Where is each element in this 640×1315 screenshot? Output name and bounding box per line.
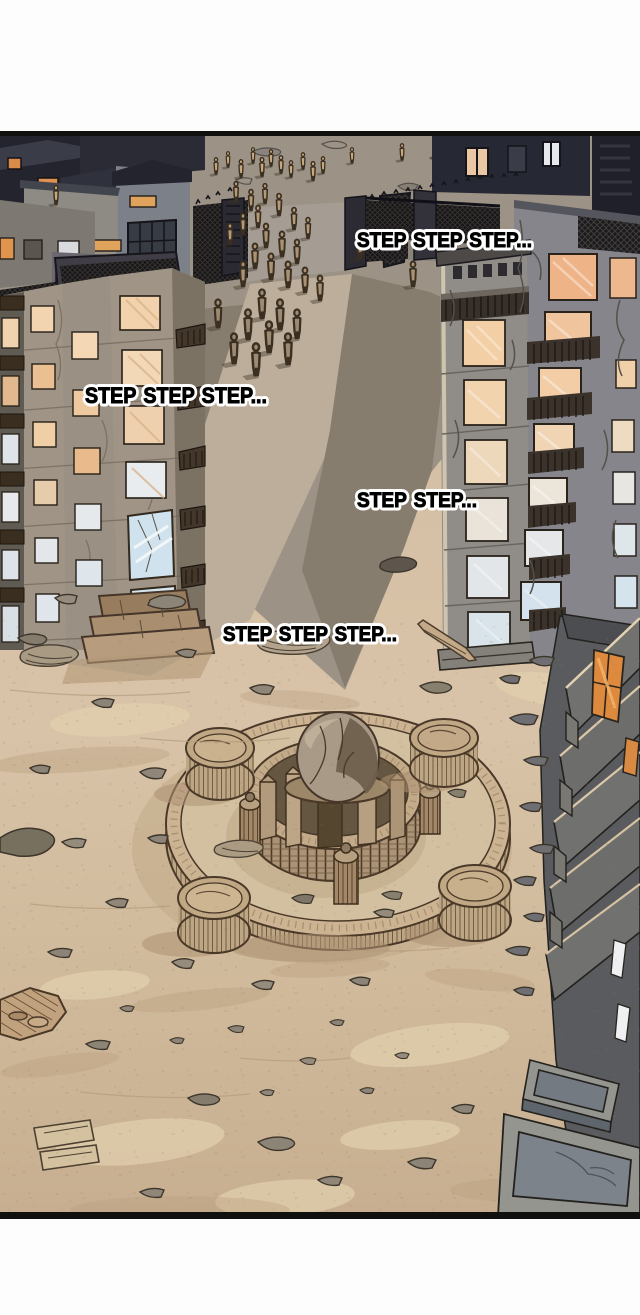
svg-text:STEP STEP...: STEP STEP... (357, 489, 477, 512)
svg-text:STEP STEP STEP...: STEP STEP STEP... (223, 623, 397, 646)
svg-text:STEP STEP STEP...: STEP STEP STEP... (357, 229, 532, 252)
svg-text:STEP STEP STEP...: STEP STEP STEP... (85, 383, 267, 408)
